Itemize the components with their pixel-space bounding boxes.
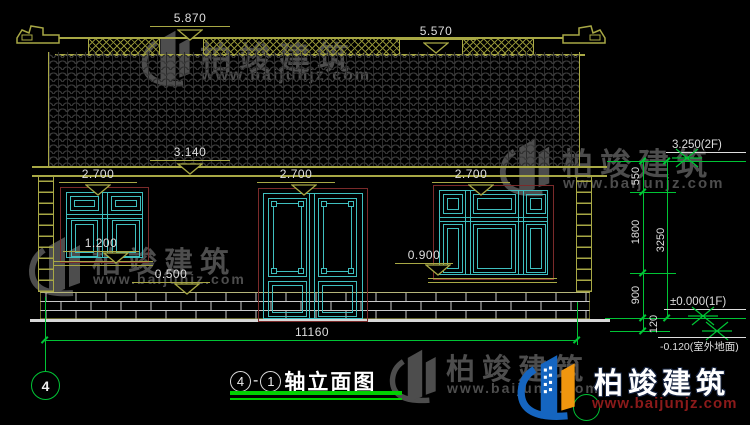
entrance-door xyxy=(258,188,368,322)
title-dash: - xyxy=(253,372,258,390)
dim-opening-right: 2.700 xyxy=(432,168,510,183)
roof-tile-field xyxy=(48,52,580,166)
dim-right-sill: 0.900 xyxy=(395,249,453,264)
dim-v120: 120 xyxy=(648,304,660,344)
dim-v3250: 3250 xyxy=(655,220,667,260)
dim-label: 0.900 xyxy=(395,249,453,262)
right-window-transom-cell xyxy=(526,194,546,214)
title-underline-thick xyxy=(230,391,402,395)
title-axis-circle-4: 4 xyxy=(230,371,251,392)
corner-pilaster-left xyxy=(38,175,54,292)
right-window xyxy=(433,185,554,280)
corner-pilaster-right xyxy=(576,175,592,292)
brand-logo-url: www.baijunjz.com xyxy=(592,395,737,412)
dim-label: 0.500 xyxy=(132,268,210,281)
right-window-pane xyxy=(526,224,546,273)
dim-label: 2.700 xyxy=(257,168,335,181)
right-window-mullion xyxy=(465,190,471,275)
dim-label: 1.200 xyxy=(63,237,139,250)
dim-v1800: 1800 xyxy=(630,212,642,252)
ext-line xyxy=(630,273,676,274)
total-width-dim-line xyxy=(45,340,577,341)
dim-eave-height: 3.140 xyxy=(150,146,230,161)
axis-bubble-4: 4 xyxy=(31,371,60,400)
dim-ridge2-height: 5.570 xyxy=(396,25,476,40)
title-axis-circle-1: 1 xyxy=(260,371,281,392)
level-ground-label: -0.120(室外地面) xyxy=(660,339,739,354)
door-right-glass xyxy=(318,198,357,277)
dim-label: 2.700 xyxy=(59,168,137,181)
right-window-sill xyxy=(428,278,557,283)
dim-total-width: 11160 xyxy=(282,326,342,339)
dim-ridge-height: 5.870 xyxy=(150,12,230,27)
level-ground-line xyxy=(658,337,746,338)
right-window-transom-cell xyxy=(473,194,516,214)
door-right-panel xyxy=(318,281,357,317)
dim-label: 5.570 xyxy=(396,25,476,38)
door-left-panel xyxy=(268,281,307,317)
door-center-divider xyxy=(309,193,315,319)
dim-label: 5.870 xyxy=(150,12,230,25)
right-window-mullion xyxy=(518,190,524,275)
dim-chain-line xyxy=(643,161,644,331)
right-window-pane xyxy=(473,224,516,273)
axis-line-left xyxy=(45,297,46,371)
right-window-transom-bar xyxy=(439,217,548,222)
dim-left-sill: 1.200 xyxy=(63,237,139,252)
dim-v550: 550 xyxy=(630,156,642,196)
brand-logo-icon xyxy=(506,350,594,422)
cad-elevation-drawing: 柏竣建筑 www.baijunjz.com 柏竣建筑 www.baijunjz.… xyxy=(0,0,750,425)
watermark-logo-icon xyxy=(388,344,442,406)
dim-opening-mid: 2.700 xyxy=(257,168,335,183)
dim-plinth-height: 0.500 xyxy=(132,268,210,283)
level-marker-icon xyxy=(670,145,704,171)
left-window-transom-cell xyxy=(111,196,141,211)
axis-bubble-label: 4 xyxy=(42,378,50,394)
dim-chain-total-line xyxy=(667,161,668,318)
dim-label: 3.140 xyxy=(150,146,230,159)
title-underline-thin xyxy=(230,398,402,400)
left-window-transom-cell xyxy=(70,196,99,211)
right-window-transom-cell xyxy=(443,194,463,214)
door-left-glass xyxy=(268,198,307,277)
dim-v900: 900 xyxy=(630,275,642,315)
dim-label: 2.700 xyxy=(432,168,510,181)
dim-opening-left: 2.700 xyxy=(59,168,137,183)
